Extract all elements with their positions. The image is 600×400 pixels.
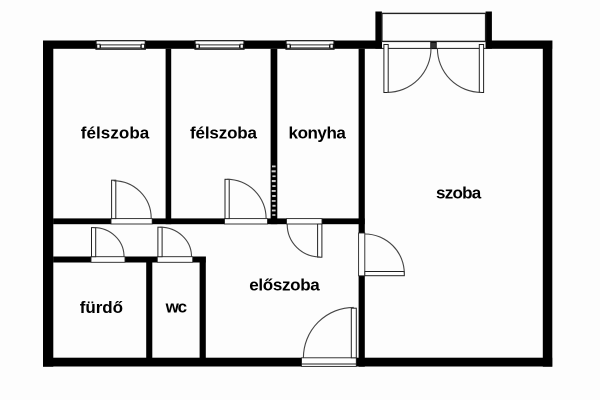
svg-text:szoba: szoba bbox=[436, 184, 482, 203]
svg-text:félszoba: félszoba bbox=[190, 123, 258, 142]
svg-text:előszoba: előszoba bbox=[249, 275, 320, 294]
svg-text:konyha: konyha bbox=[289, 124, 347, 143]
svg-text:fürdő: fürdő bbox=[80, 298, 123, 317]
svg-text:wc: wc bbox=[165, 298, 188, 317]
svg-text:félszoba: félszoba bbox=[81, 123, 150, 142]
